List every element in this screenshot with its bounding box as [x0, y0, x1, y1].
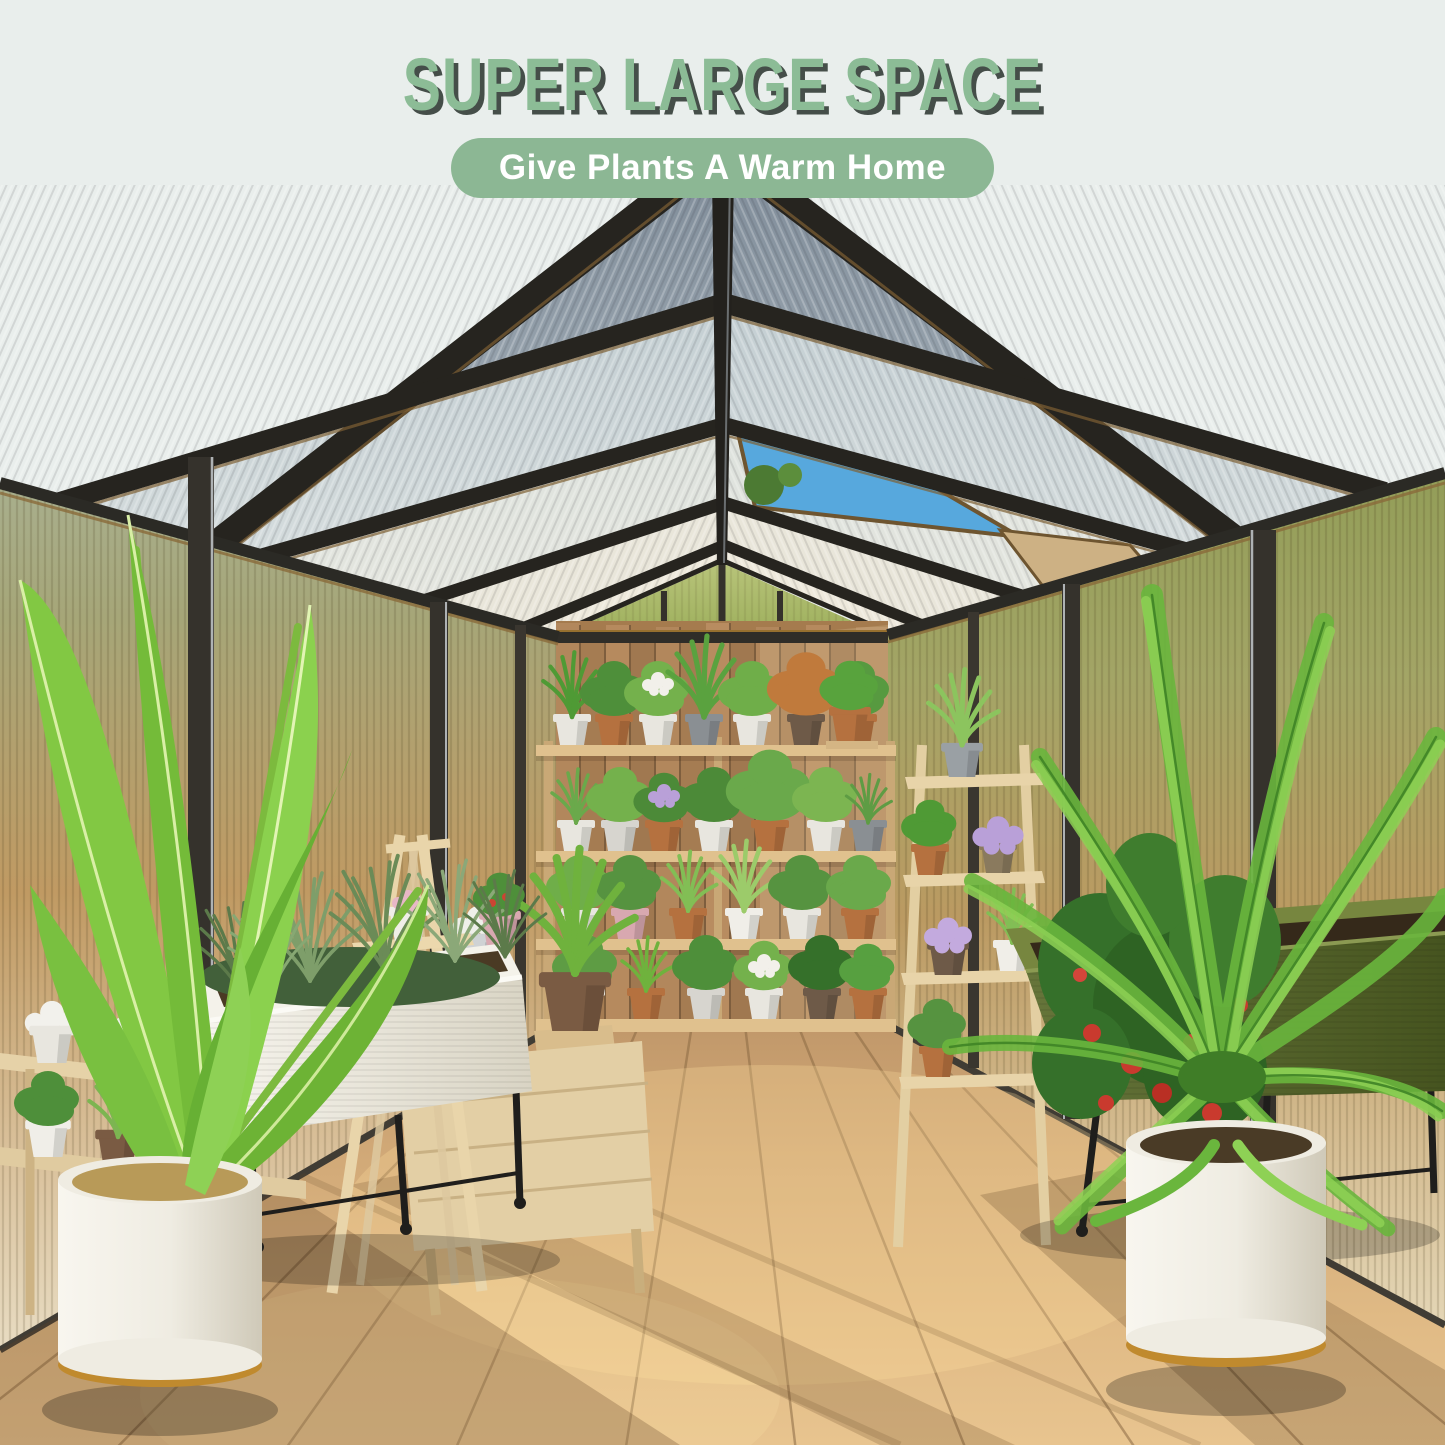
- greenhouse-photo: [0, 185, 1445, 1445]
- greenhouse-marketing-image: SUPER LARGE SPACE Give Plants A Warm Hom…: [0, 0, 1445, 1445]
- header-banner: SUPER LARGE SPACE Give Plants A Warm Hom…: [0, 0, 1445, 190]
- page-title: SUPER LARGE SPACE: [43, 0, 1401, 127]
- subtitle-pill: Give Plants A Warm Home: [451, 138, 994, 198]
